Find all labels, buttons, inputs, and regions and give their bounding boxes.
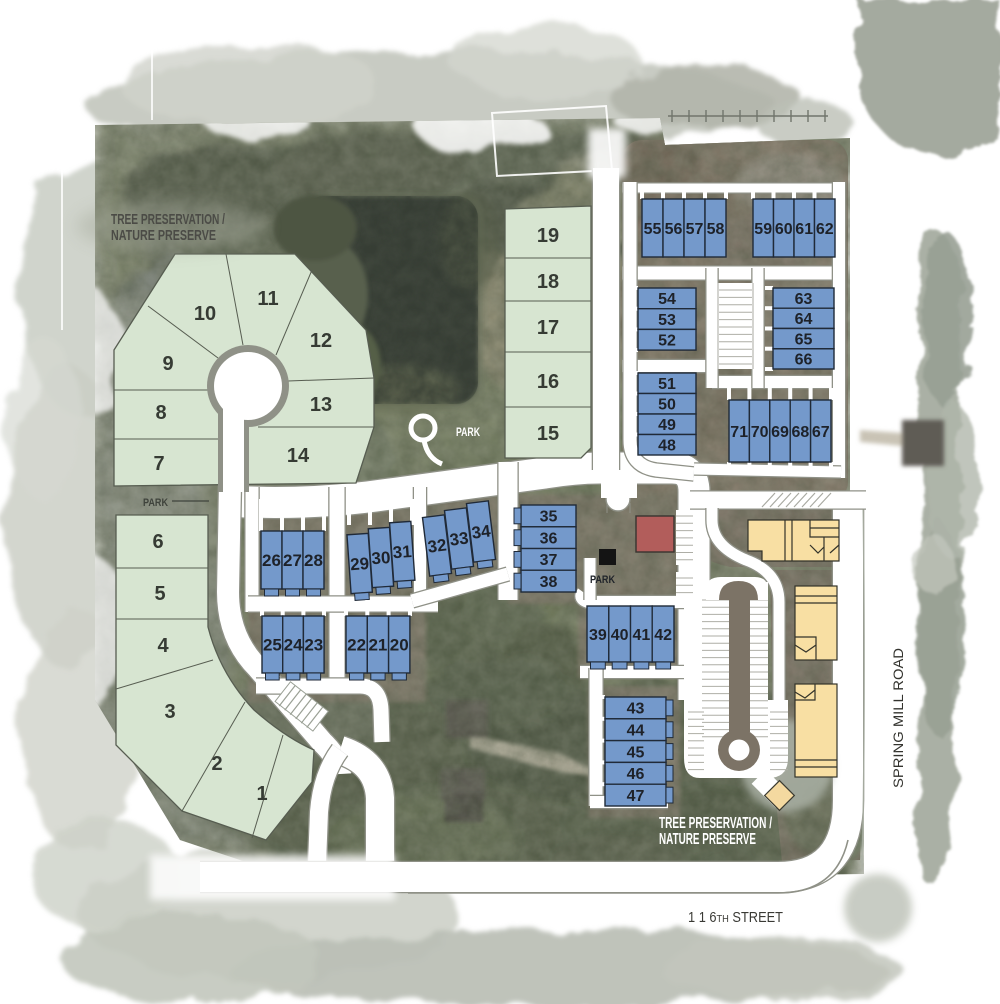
svg-text:8: 8 xyxy=(155,402,166,424)
svg-text:34: 34 xyxy=(471,521,493,542)
svg-text:13: 13 xyxy=(310,394,332,416)
svg-text:42: 42 xyxy=(654,627,672,644)
svg-text:15: 15 xyxy=(537,423,559,445)
svg-text:35: 35 xyxy=(540,509,558,526)
svg-text:2: 2 xyxy=(211,753,222,775)
svg-text:67: 67 xyxy=(812,424,830,441)
svg-text:48: 48 xyxy=(658,438,676,455)
svg-text:37: 37 xyxy=(540,552,558,569)
svg-text:40: 40 xyxy=(611,627,629,644)
svg-text:PARK: PARK xyxy=(590,574,615,586)
svg-text:16: 16 xyxy=(537,371,559,393)
svg-text:59: 59 xyxy=(754,221,772,238)
svg-text:4: 4 xyxy=(157,635,169,657)
svg-text:62: 62 xyxy=(816,221,834,238)
svg-text:43: 43 xyxy=(627,701,645,718)
svg-text:49: 49 xyxy=(658,417,676,434)
svg-text:26: 26 xyxy=(262,551,281,570)
svg-text:58: 58 xyxy=(707,221,725,238)
svg-text:64: 64 xyxy=(795,311,813,328)
svg-text:20: 20 xyxy=(390,636,409,655)
svg-text:19: 19 xyxy=(537,225,559,247)
svg-text:10: 10 xyxy=(194,303,216,325)
svg-text:54: 54 xyxy=(658,291,676,308)
svg-text:63: 63 xyxy=(795,291,813,308)
svg-text:71: 71 xyxy=(730,424,748,441)
svg-text:TREE PRESERVATION /: TREE PRESERVATION / xyxy=(111,211,226,228)
svg-text:28: 28 xyxy=(304,551,323,570)
svg-text:51: 51 xyxy=(658,376,676,393)
svg-text:60: 60 xyxy=(775,221,793,238)
svg-text:PARK: PARK xyxy=(143,497,168,509)
svg-text:25: 25 xyxy=(263,636,282,655)
svg-text:57: 57 xyxy=(686,221,704,238)
svg-text:23: 23 xyxy=(304,636,323,655)
svg-text:5: 5 xyxy=(154,583,165,605)
svg-text:29: 29 xyxy=(350,554,370,574)
svg-text:14: 14 xyxy=(287,445,310,467)
svg-text:18: 18 xyxy=(537,271,559,293)
svg-text:22: 22 xyxy=(347,636,366,655)
svg-text:65: 65 xyxy=(795,331,813,348)
svg-text:6: 6 xyxy=(152,531,163,553)
svg-text:56: 56 xyxy=(665,221,683,238)
svg-text:39: 39 xyxy=(589,627,607,644)
svg-text:11: 11 xyxy=(257,288,278,310)
svg-text:7: 7 xyxy=(153,453,164,475)
svg-text:38: 38 xyxy=(540,574,558,591)
svg-text:TREE PRESERVATION /: TREE PRESERVATION / xyxy=(659,815,772,832)
svg-text:41: 41 xyxy=(633,627,651,644)
svg-text:53: 53 xyxy=(658,312,676,329)
svg-text:27: 27 xyxy=(283,551,302,570)
svg-text:31: 31 xyxy=(392,542,412,562)
svg-text:45: 45 xyxy=(627,744,645,761)
svg-text:21: 21 xyxy=(368,636,387,655)
svg-text:30: 30 xyxy=(371,548,391,568)
svg-text:24: 24 xyxy=(284,636,303,655)
svg-text:1: 1 xyxy=(256,783,267,805)
svg-text:36: 36 xyxy=(540,530,558,547)
svg-text:46: 46 xyxy=(627,766,645,783)
svg-text:PARK: PARK xyxy=(456,427,481,439)
svg-text:9: 9 xyxy=(162,353,173,375)
svg-text:47: 47 xyxy=(627,788,645,805)
svg-text:61: 61 xyxy=(795,221,813,238)
svg-text:70: 70 xyxy=(751,424,769,441)
svg-text:NATURE PRESERVE: NATURE PRESERVE xyxy=(111,227,216,244)
svg-text:SPRING MILL ROAD: SPRING MILL ROAD xyxy=(890,648,906,788)
svg-text:1 1 6TH STREET: 1 1 6TH STREET xyxy=(688,910,783,926)
svg-text:55: 55 xyxy=(644,221,662,238)
svg-text:50: 50 xyxy=(658,397,676,414)
svg-text:44: 44 xyxy=(627,723,645,740)
svg-text:3: 3 xyxy=(164,701,175,723)
svg-text:17: 17 xyxy=(537,317,559,339)
svg-text:69: 69 xyxy=(771,424,789,441)
svg-text:33: 33 xyxy=(449,529,470,550)
svg-text:32: 32 xyxy=(427,536,448,557)
svg-text:68: 68 xyxy=(792,424,810,441)
svg-text:12: 12 xyxy=(310,330,332,352)
svg-text:NATURE PRESERVE: NATURE PRESERVE xyxy=(659,831,756,848)
svg-text:66: 66 xyxy=(795,352,813,369)
svg-text:52: 52 xyxy=(658,333,676,350)
